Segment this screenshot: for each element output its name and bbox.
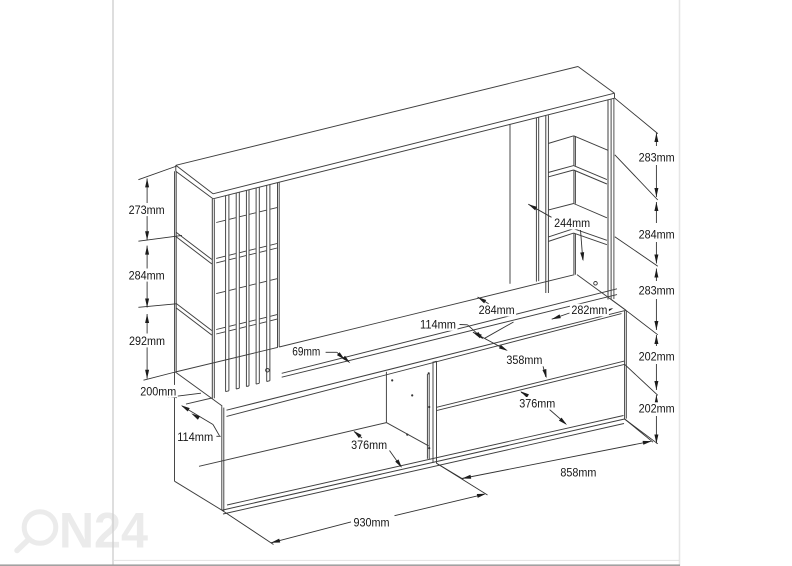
svg-text:273mm: 273mm <box>129 203 165 217</box>
svg-text:930mm: 930mm <box>354 515 390 529</box>
svg-text:858mm: 858mm <box>560 465 596 479</box>
svg-text:283mm: 283mm <box>639 150 675 164</box>
svg-text:358mm: 358mm <box>506 353 542 367</box>
svg-text:284mm: 284mm <box>479 303 515 317</box>
svg-text:202mm: 202mm <box>639 402 675 416</box>
svg-text:376mm: 376mm <box>351 438 387 452</box>
svg-text:69mm: 69mm <box>292 345 320 359</box>
svg-text:284mm: 284mm <box>639 228 675 242</box>
svg-text:376mm: 376mm <box>519 396 555 410</box>
svg-text:N24: N24 <box>59 503 148 559</box>
svg-text:114mm: 114mm <box>420 318 456 332</box>
svg-text:282mm: 282mm <box>571 303 607 317</box>
svg-text:292mm: 292mm <box>129 334 165 348</box>
svg-text:284mm: 284mm <box>129 268 165 282</box>
svg-text:202mm: 202mm <box>639 350 675 364</box>
svg-text:200mm: 200mm <box>140 384 176 398</box>
svg-text:283mm: 283mm <box>639 284 675 298</box>
svg-text:244mm: 244mm <box>554 216 590 230</box>
svg-text:114mm: 114mm <box>177 430 213 444</box>
